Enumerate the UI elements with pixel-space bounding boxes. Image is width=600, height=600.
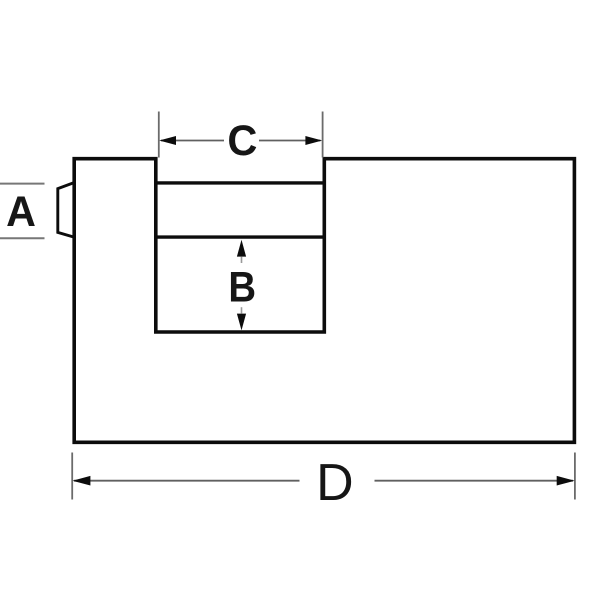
svg-text:C: C	[227, 117, 257, 165]
svg-text:D: D	[316, 453, 354, 511]
svg-text:B: B	[228, 263, 256, 311]
svg-text:A: A	[6, 188, 36, 236]
